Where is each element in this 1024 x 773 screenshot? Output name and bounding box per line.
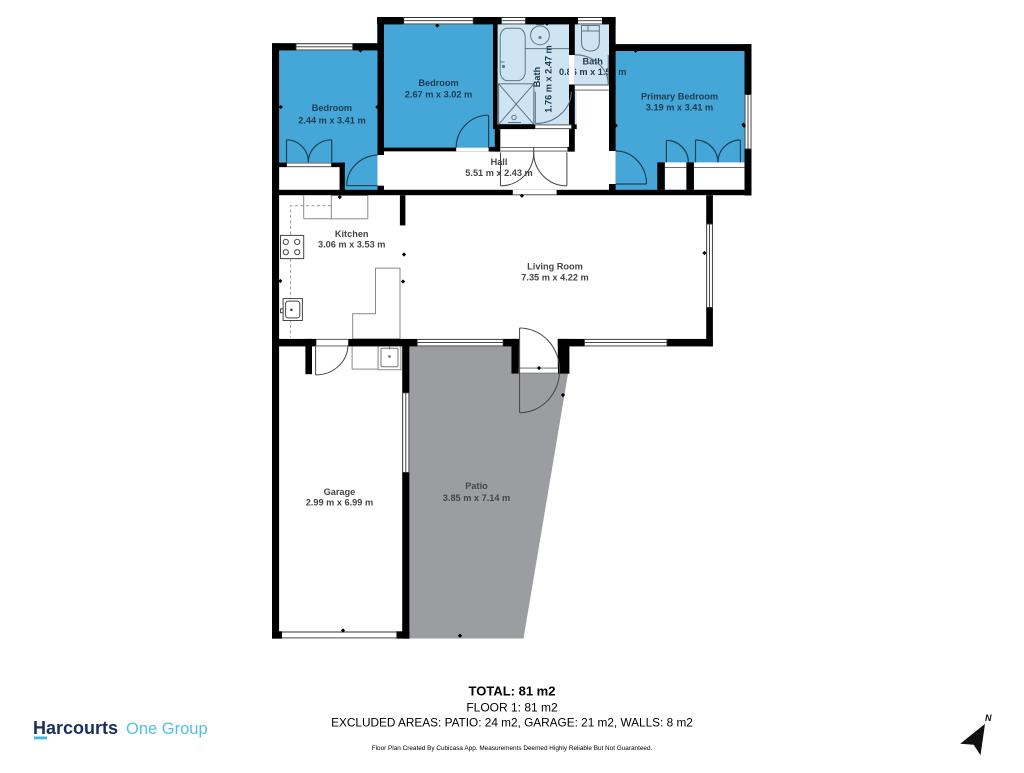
svg-text:TOTAL: 81 m2: TOTAL: 81 m2 <box>469 684 556 699</box>
svg-text:5.51 m x 2.43 m: 5.51 m x 2.43 m <box>465 168 532 178</box>
svg-text:Hall: Hall <box>491 157 508 167</box>
svg-text:3.19 m x 3.41 m: 3.19 m x 3.41 m <box>646 103 713 113</box>
svg-text:One Group: One Group <box>126 720 208 738</box>
svg-text:Floor Plan Created By Cubicasa: Floor Plan Created By Cubicasa App. Meas… <box>372 745 653 752</box>
svg-text:EXCLUDED AREAS: PATIO: 24 m2,: EXCLUDED AREAS: PATIO: 24 m2, GARAGE: 21… <box>331 716 693 730</box>
svg-text:Harcourts: Harcourts <box>33 718 118 738</box>
svg-text:Bedroom: Bedroom <box>312 103 352 113</box>
svg-text:2.99 m x 6.99 m: 2.99 m x 6.99 m <box>306 498 373 508</box>
svg-text:Primary Bedroom: Primary Bedroom <box>641 91 718 101</box>
svg-text:Patio: Patio <box>465 481 488 491</box>
svg-text:Bedroom: Bedroom <box>418 78 458 88</box>
svg-text:2.44 m x 3.41 m: 2.44 m x 3.41 m <box>298 116 365 126</box>
svg-text:3.06 m x 3.53 m: 3.06 m x 3.53 m <box>318 240 385 250</box>
svg-text:2.67 m x 3.02 m: 2.67 m x 3.02 m <box>405 90 472 100</box>
svg-text:3.85 m x 7.14 m: 3.85 m x 7.14 m <box>443 493 510 503</box>
svg-text:Garage: Garage <box>324 487 356 497</box>
svg-text:1.76 m x 2.47 m: 1.76 m x 2.47 m <box>544 45 554 112</box>
svg-text:N: N <box>985 713 992 723</box>
svg-text:7.35 m x 4.22 m: 7.35 m x 4.22 m <box>521 273 588 283</box>
svg-text:Kitchen: Kitchen <box>335 229 369 239</box>
svg-text:FLOOR 1: 81 m2: FLOOR 1: 81 m2 <box>466 701 558 715</box>
svg-text:Living Room: Living Room <box>527 261 583 271</box>
svg-text:Bath: Bath <box>532 66 542 87</box>
